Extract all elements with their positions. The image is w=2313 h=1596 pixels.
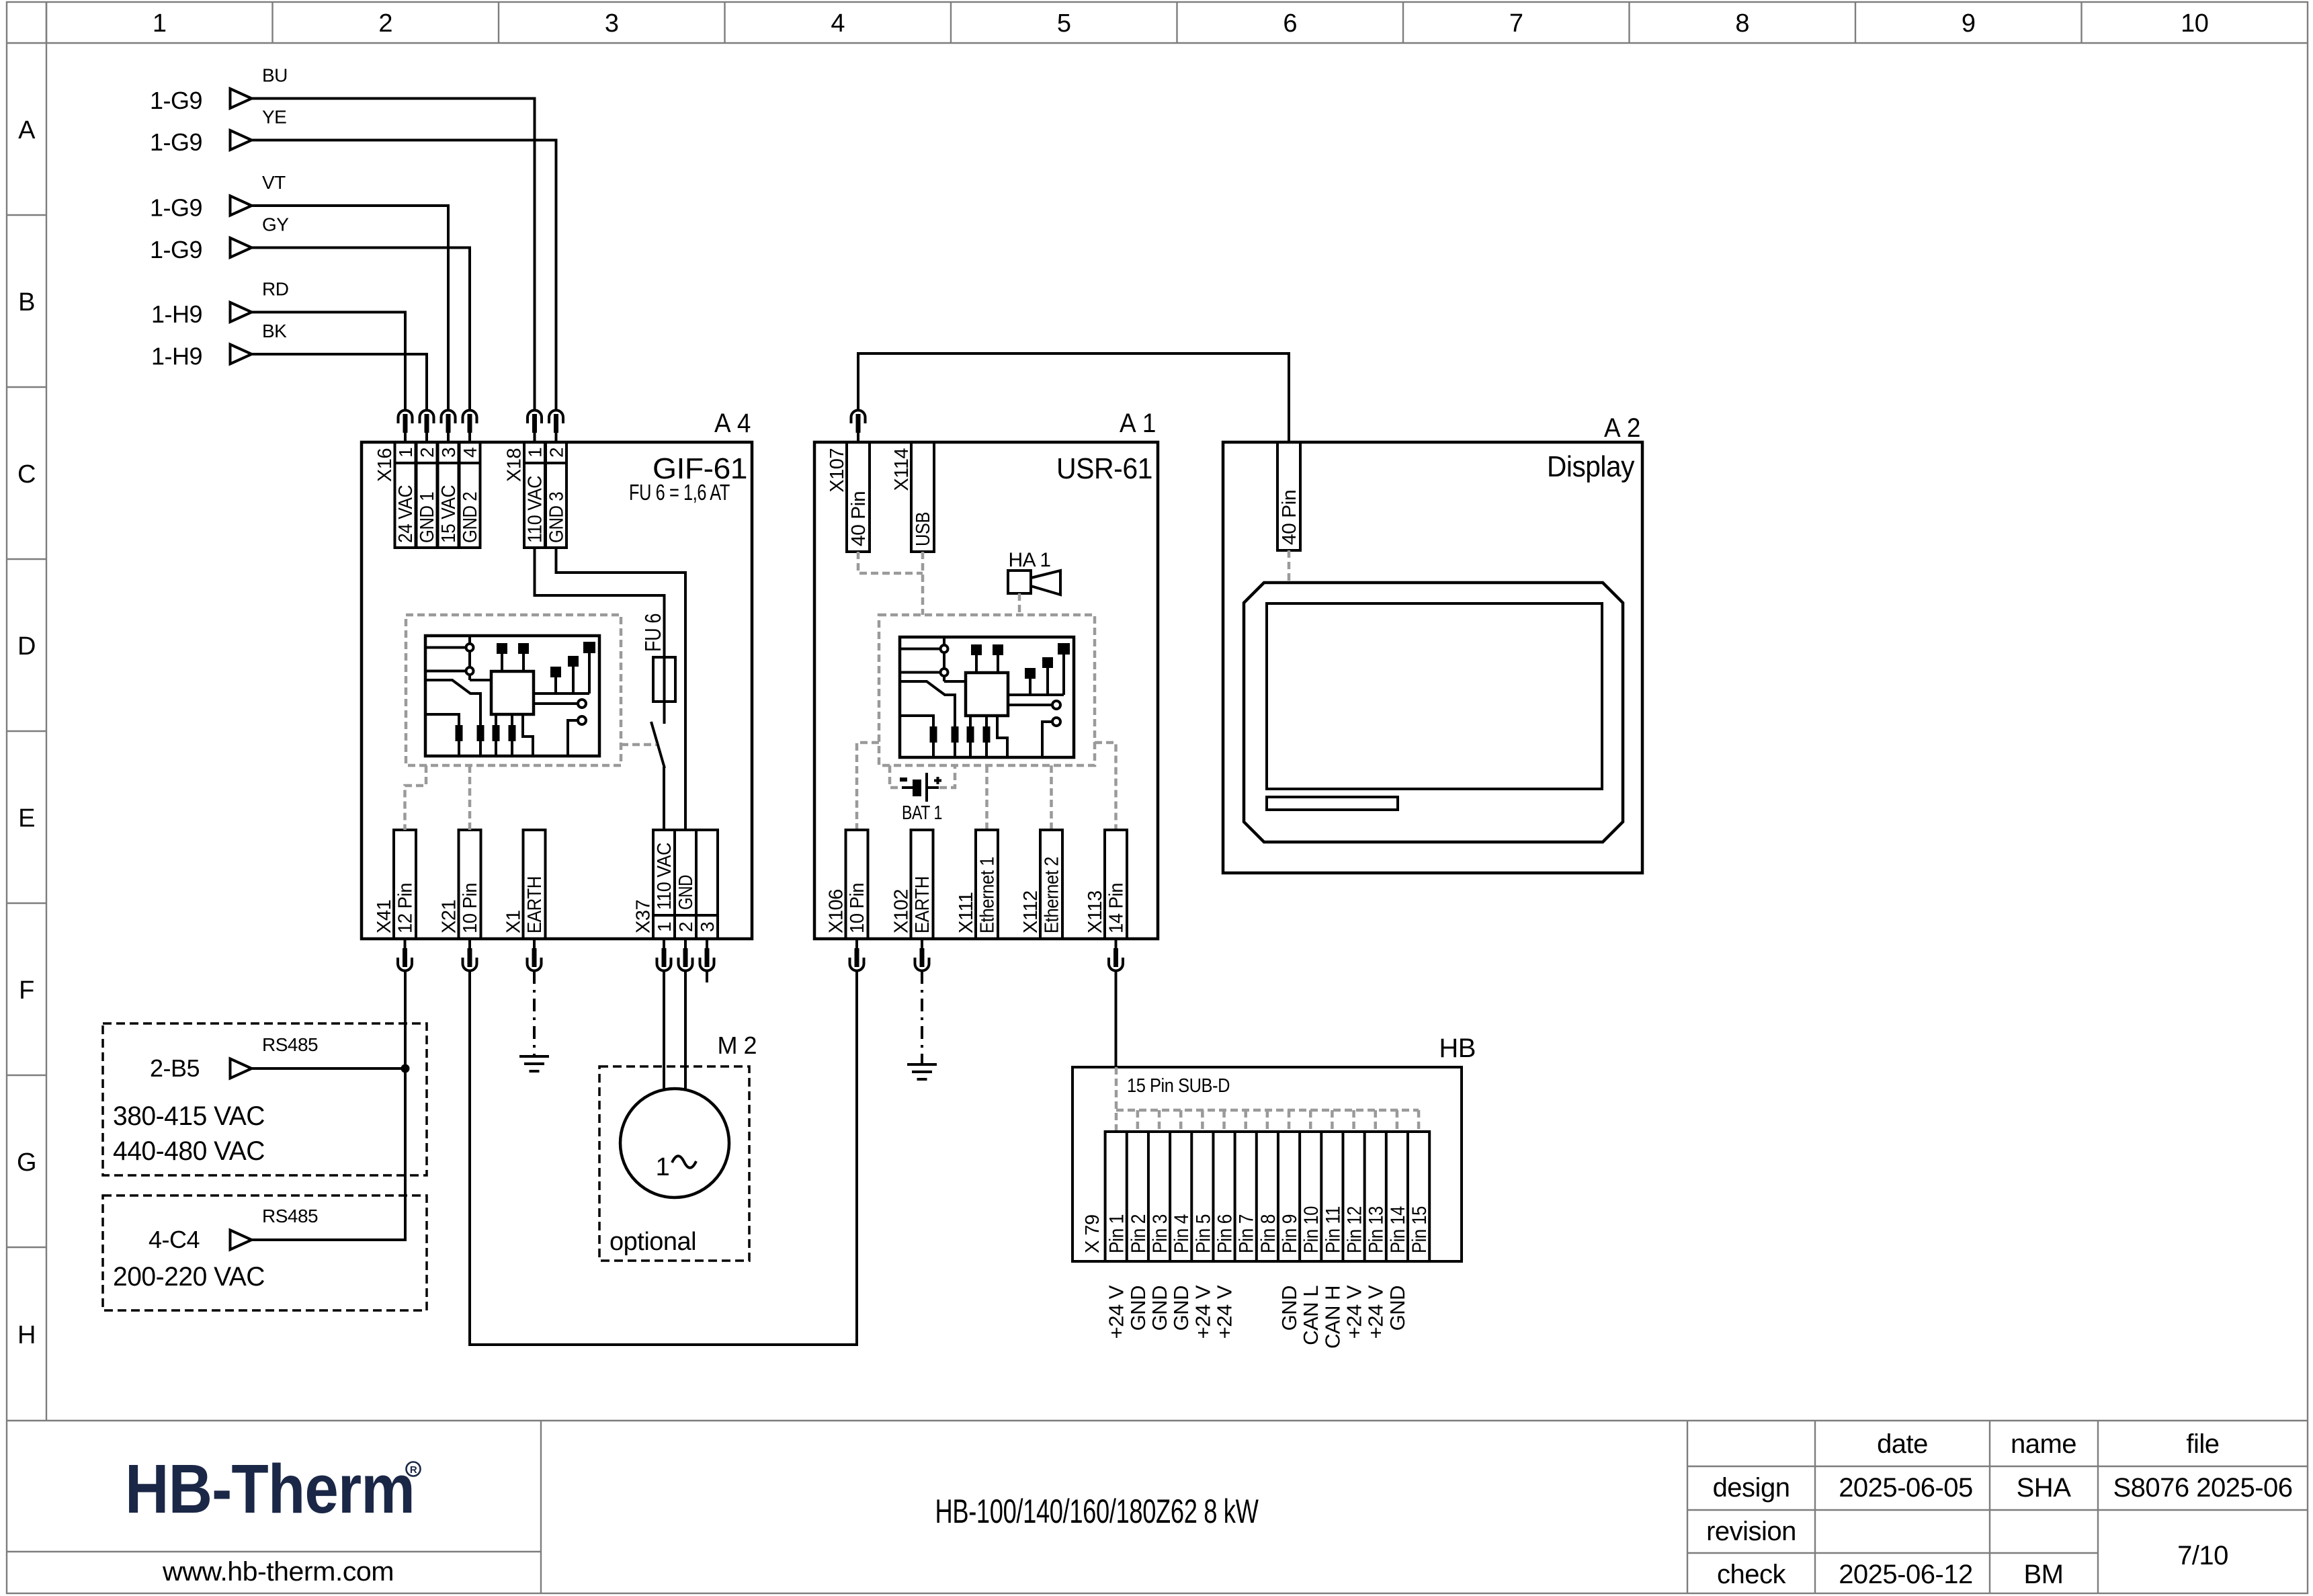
- svg-text:date: date: [1877, 1429, 1928, 1459]
- svg-text:F: F: [19, 976, 34, 1005]
- svg-text:1-H9: 1-H9: [151, 300, 202, 328]
- svg-text:X1: X1: [503, 911, 525, 933]
- svg-text:Pin 6: Pin 6: [1214, 1214, 1236, 1253]
- svg-text:FU 6 = 1,6 AT: FU 6 = 1,6 AT: [629, 480, 730, 505]
- svg-text:USR-61: USR-61: [1056, 452, 1152, 485]
- svg-text:Pin 12: Pin 12: [1344, 1206, 1366, 1253]
- svg-text:GND: GND: [1169, 1286, 1193, 1331]
- svg-text:HB-100/140/160/180Z62 8 kW: HB-100/140/160/180Z62 8 kW: [935, 1493, 1259, 1530]
- svg-text:1-H9: 1-H9: [151, 343, 202, 370]
- svg-text:Display: Display: [1547, 450, 1634, 483]
- svg-text:VT: VT: [262, 172, 286, 193]
- svg-text:3: 3: [605, 9, 619, 38]
- svg-text:4: 4: [460, 448, 480, 458]
- svg-text:HB: HB: [1439, 1034, 1476, 1063]
- svg-text:+24 V: +24 V: [1343, 1285, 1366, 1339]
- svg-text:Ethernet 1: Ethernet 1: [977, 857, 999, 933]
- svg-text:GND: GND: [1148, 1286, 1171, 1331]
- svg-text:X21: X21: [439, 900, 460, 933]
- svg-text:2: 2: [417, 448, 437, 458]
- svg-text:15 VAC: 15 VAC: [438, 485, 460, 543]
- svg-text:G: G: [17, 1148, 36, 1177]
- svg-text:BAT 1: BAT 1: [902, 802, 942, 824]
- svg-text:BM: BM: [2024, 1560, 2064, 1589]
- svg-text:Ethernet 2: Ethernet 2: [1042, 857, 1063, 933]
- svg-text:RS485: RS485: [262, 1034, 318, 1055]
- svg-text:+24 V: +24 V: [1105, 1285, 1128, 1339]
- svg-text:optional: optional: [609, 1228, 696, 1256]
- svg-text:7: 7: [1509, 9, 1523, 38]
- svg-text:200-220 VAC: 200-220 VAC: [113, 1262, 265, 1292]
- svg-text:2: 2: [675, 922, 696, 932]
- svg-text:X114: X114: [891, 448, 913, 491]
- svg-text:design: design: [1713, 1473, 1790, 1503]
- svg-text:5: 5: [1057, 9, 1071, 38]
- svg-text:RD: RD: [262, 279, 288, 300]
- svg-text:X112: X112: [1020, 890, 1042, 933]
- svg-text:GND 1: GND 1: [417, 492, 438, 543]
- svg-text:Pin 7: Pin 7: [1236, 1214, 1258, 1253]
- svg-text:1: 1: [656, 1153, 670, 1181]
- svg-text:X 79: X 79: [1082, 1214, 1103, 1253]
- svg-text:RS485: RS485: [262, 1206, 318, 1226]
- svg-text:www.hb-therm.com: www.hb-therm.com: [162, 1557, 394, 1587]
- svg-text:1-G9: 1-G9: [150, 128, 202, 156]
- svg-text:4-C4: 4-C4: [149, 1226, 200, 1253]
- svg-text:H: H: [17, 1321, 36, 1349]
- svg-text:4: 4: [831, 9, 845, 38]
- svg-text:Pin 10: Pin 10: [1300, 1206, 1322, 1253]
- svg-text:D: D: [17, 632, 36, 661]
- svg-text:E: E: [18, 804, 35, 833]
- svg-text:1: 1: [654, 922, 675, 932]
- svg-text:X111: X111: [956, 892, 977, 933]
- svg-text:USB: USB: [913, 512, 934, 546]
- svg-text:Pin 1: Pin 1: [1106, 1214, 1128, 1253]
- svg-text:2025-06-05: 2025-06-05: [1839, 1473, 1973, 1503]
- svg-text:name: name: [2011, 1429, 2076, 1459]
- svg-text:X113: X113: [1085, 890, 1106, 933]
- svg-text:6: 6: [1283, 9, 1297, 38]
- svg-text:110 VAC: 110 VAC: [525, 476, 546, 543]
- svg-text:file: file: [2186, 1429, 2219, 1459]
- svg-text:GND 3: GND 3: [546, 492, 568, 543]
- svg-text:Pin 11: Pin 11: [1322, 1206, 1344, 1253]
- svg-text:S8076 2025-06: S8076 2025-06: [2113, 1473, 2292, 1503]
- svg-text:Pin 5: Pin 5: [1192, 1214, 1214, 1253]
- svg-text:Pin 3: Pin 3: [1149, 1214, 1171, 1253]
- svg-text:7/10: 7/10: [2177, 1541, 2228, 1570]
- svg-text:GY: GY: [262, 214, 289, 235]
- svg-text:9: 9: [1962, 9, 1976, 38]
- svg-text:GND: GND: [1386, 1286, 1409, 1331]
- svg-text:8: 8: [1735, 9, 1749, 38]
- svg-text:EARTH: EARTH: [524, 876, 546, 933]
- svg-text:1-G9: 1-G9: [150, 236, 202, 263]
- svg-text:GND: GND: [1277, 1286, 1301, 1331]
- svg-text:1: 1: [525, 448, 546, 458]
- svg-text:revision: revision: [1706, 1517, 1796, 1546]
- svg-text:BU: BU: [262, 65, 288, 86]
- svg-text:check: check: [1717, 1560, 1786, 1589]
- svg-text:+24 V: +24 V: [1364, 1285, 1388, 1339]
- svg-text:3: 3: [438, 448, 459, 458]
- svg-text:CAN L: CAN L: [1299, 1286, 1322, 1345]
- svg-text:15 Pin SUB-D: 15 Pin SUB-D: [1127, 1075, 1230, 1097]
- svg-text:B: B: [18, 288, 35, 317]
- svg-text:1-G9: 1-G9: [150, 194, 202, 222]
- svg-text:10: 10: [2181, 9, 2208, 38]
- svg-text:A: A: [18, 116, 36, 144]
- svg-text:110 VAC: 110 VAC: [654, 843, 675, 910]
- svg-text:3: 3: [697, 922, 718, 932]
- svg-text:X41: X41: [374, 900, 395, 933]
- svg-text:YE: YE: [262, 107, 286, 128]
- svg-text:Pin 8: Pin 8: [1257, 1214, 1279, 1253]
- svg-text:CAN H: CAN H: [1320, 1286, 1344, 1349]
- svg-text:2: 2: [546, 448, 567, 458]
- svg-text:HB-Therm: HB-Therm: [125, 1450, 415, 1527]
- svg-text:14 Pin: 14 Pin: [1106, 883, 1128, 933]
- svg-text:X18: X18: [504, 448, 525, 482]
- svg-text:EARTH: EARTH: [912, 876, 933, 933]
- svg-text:+24 V: +24 V: [1191, 1285, 1214, 1339]
- svg-text:2025-06-12: 2025-06-12: [1839, 1560, 1973, 1589]
- svg-text:Pin 14: Pin 14: [1387, 1206, 1409, 1253]
- svg-text:A 2: A 2: [1604, 413, 1640, 443]
- svg-text:24 VAC: 24 VAC: [395, 485, 417, 543]
- svg-text:40 Pin: 40 Pin: [848, 491, 870, 546]
- svg-text:M 2: M 2: [717, 1032, 757, 1059]
- svg-text:HA 1: HA 1: [1008, 549, 1050, 571]
- svg-text:Pin 15: Pin 15: [1408, 1206, 1431, 1253]
- svg-text:GND: GND: [675, 875, 697, 910]
- svg-text:X106: X106: [826, 889, 847, 933]
- svg-text:10 Pin: 10 Pin: [847, 883, 868, 933]
- svg-text:2: 2: [378, 9, 392, 38]
- svg-text:+24 V: +24 V: [1213, 1285, 1236, 1339]
- svg-text:GND 2: GND 2: [460, 492, 481, 543]
- svg-text:R: R: [410, 1464, 417, 1476]
- svg-text:A 4: A 4: [714, 409, 751, 438]
- svg-text:X37: X37: [633, 900, 655, 933]
- svg-text:10 Pin: 10 Pin: [460, 883, 481, 933]
- svg-text:380-415 VAC: 380-415 VAC: [113, 1101, 265, 1131]
- svg-text:A 1: A 1: [1120, 409, 1156, 438]
- svg-text:Pin 2: Pin 2: [1128, 1214, 1150, 1253]
- svg-text:440-480 VAC: 440-480 VAC: [113, 1136, 265, 1166]
- svg-text:1-G9: 1-G9: [150, 87, 202, 114]
- svg-text:Pin 4: Pin 4: [1171, 1214, 1193, 1253]
- svg-text:SHA: SHA: [2017, 1473, 2072, 1503]
- svg-text:40 Pin: 40 Pin: [1279, 490, 1300, 545]
- svg-text:X107: X107: [827, 448, 848, 493]
- svg-text:Pin 9: Pin 9: [1279, 1214, 1301, 1253]
- svg-text:1: 1: [153, 9, 167, 38]
- svg-text:X16: X16: [374, 448, 396, 482]
- svg-text:GND: GND: [1126, 1286, 1150, 1331]
- svg-text:Pin 13: Pin 13: [1365, 1206, 1388, 1253]
- svg-text:X102: X102: [891, 889, 913, 933]
- svg-text:C: C: [17, 460, 36, 489]
- svg-text:BK: BK: [262, 321, 287, 341]
- svg-text:2-B5: 2-B5: [150, 1054, 200, 1082]
- svg-text:1: 1: [395, 448, 416, 458]
- svg-text:12 Pin: 12 Pin: [395, 883, 417, 933]
- svg-text:FU 6: FU 6: [640, 614, 665, 652]
